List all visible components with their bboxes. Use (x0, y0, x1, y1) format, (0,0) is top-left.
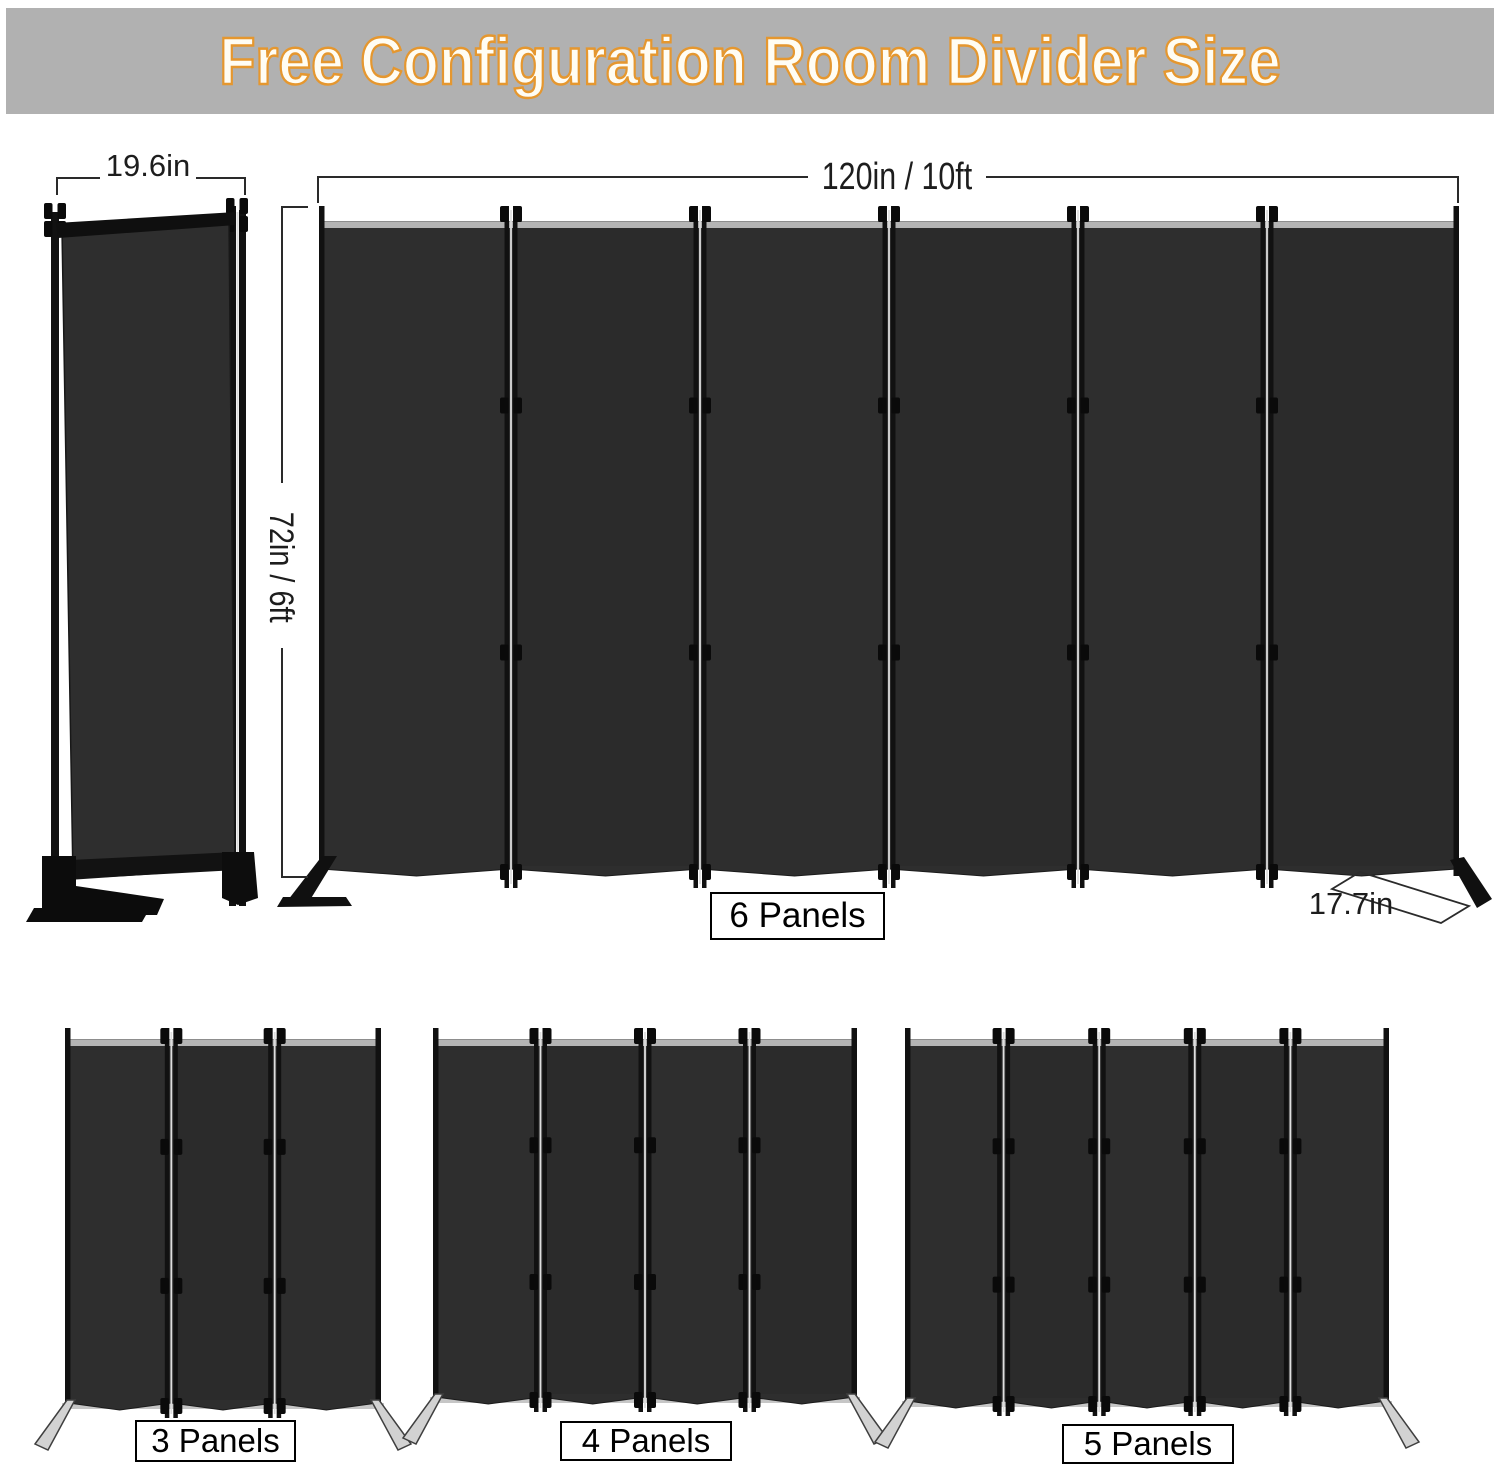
five-panels-label: 5 Panels (1062, 1424, 1234, 1464)
three-panels-label: 3 Panels (135, 1420, 296, 1462)
dimension-folded-width-label: 19.6in (78, 150, 218, 181)
room-divider-size-infographic: Free Configuration Room Divider Size 19.… (0, 0, 1500, 1466)
six-panels-label: 6 Panels (710, 892, 885, 940)
folded-divider-illustration (26, 198, 258, 922)
four-panel-divider-illustration (403, 1028, 887, 1444)
six-panel-divider-illustration (277, 206, 1492, 923)
five-panel-divider-illustration (875, 1028, 1419, 1448)
dimension-height-label: 72in / 6ft (258, 495, 304, 640)
divider-illustrations (0, 0, 1500, 1466)
dimension-total-width-label: 120in / 10ft (805, 158, 989, 196)
four-panels-label: 4 Panels (560, 1421, 732, 1461)
three-panel-divider-illustration (35, 1028, 411, 1450)
dimension-foot-depth-label: 17.7in (1296, 888, 1406, 919)
